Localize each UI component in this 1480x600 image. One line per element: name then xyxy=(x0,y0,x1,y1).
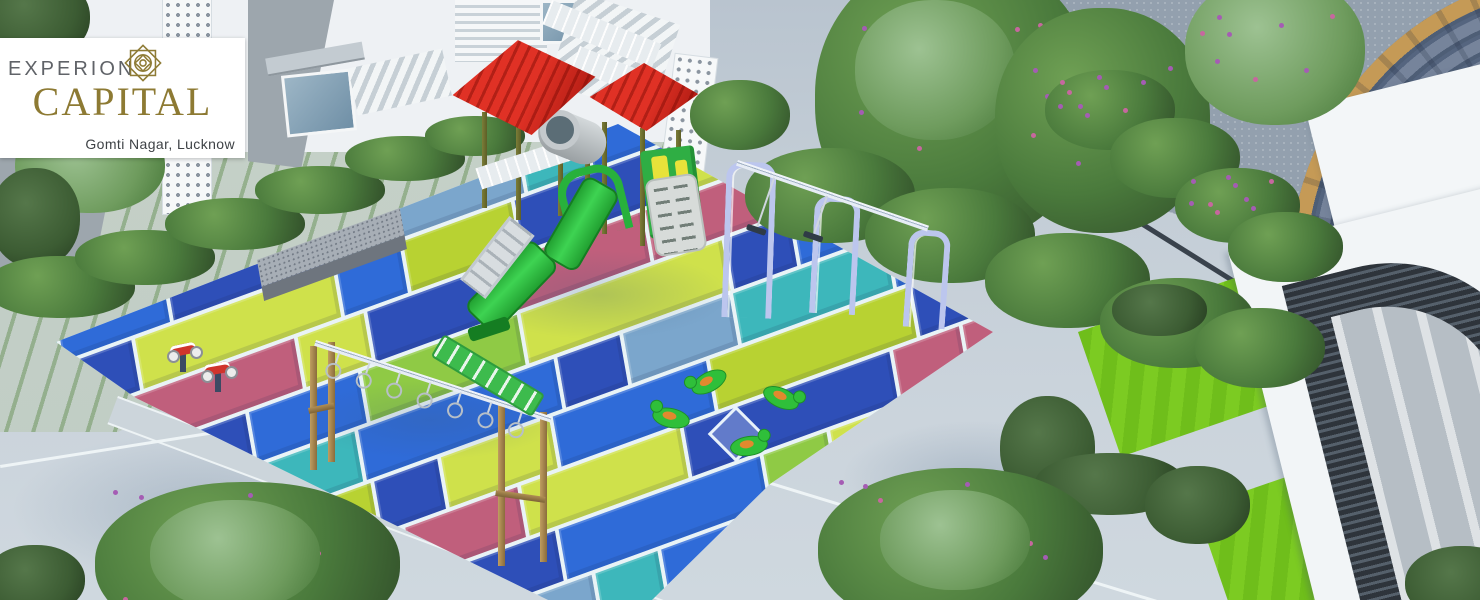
flower xyxy=(139,495,144,500)
flower xyxy=(1043,555,1048,560)
flower xyxy=(248,493,253,498)
tree-canopy xyxy=(150,500,320,600)
tree-canopy xyxy=(1405,546,1480,600)
flower xyxy=(839,480,844,485)
flower xyxy=(863,484,868,489)
logo-tagline: Gomti Nagar, Lucknow xyxy=(85,136,235,152)
flower xyxy=(113,490,118,495)
logo-name: CAPITAL xyxy=(0,82,245,122)
flower xyxy=(123,597,128,600)
brand-name: EXPERION xyxy=(8,58,135,81)
tree-canopy xyxy=(880,490,1030,590)
logo-card[interactable]: EXPERION CAPITAL Gomti Nagar, Lucknow xyxy=(0,38,245,158)
flower xyxy=(965,482,970,487)
playground-render: EXPERION CAPITAL Gomti Nagar, Lucknow xyxy=(0,0,1480,600)
tree-canopy xyxy=(0,545,85,600)
flower xyxy=(878,498,883,503)
